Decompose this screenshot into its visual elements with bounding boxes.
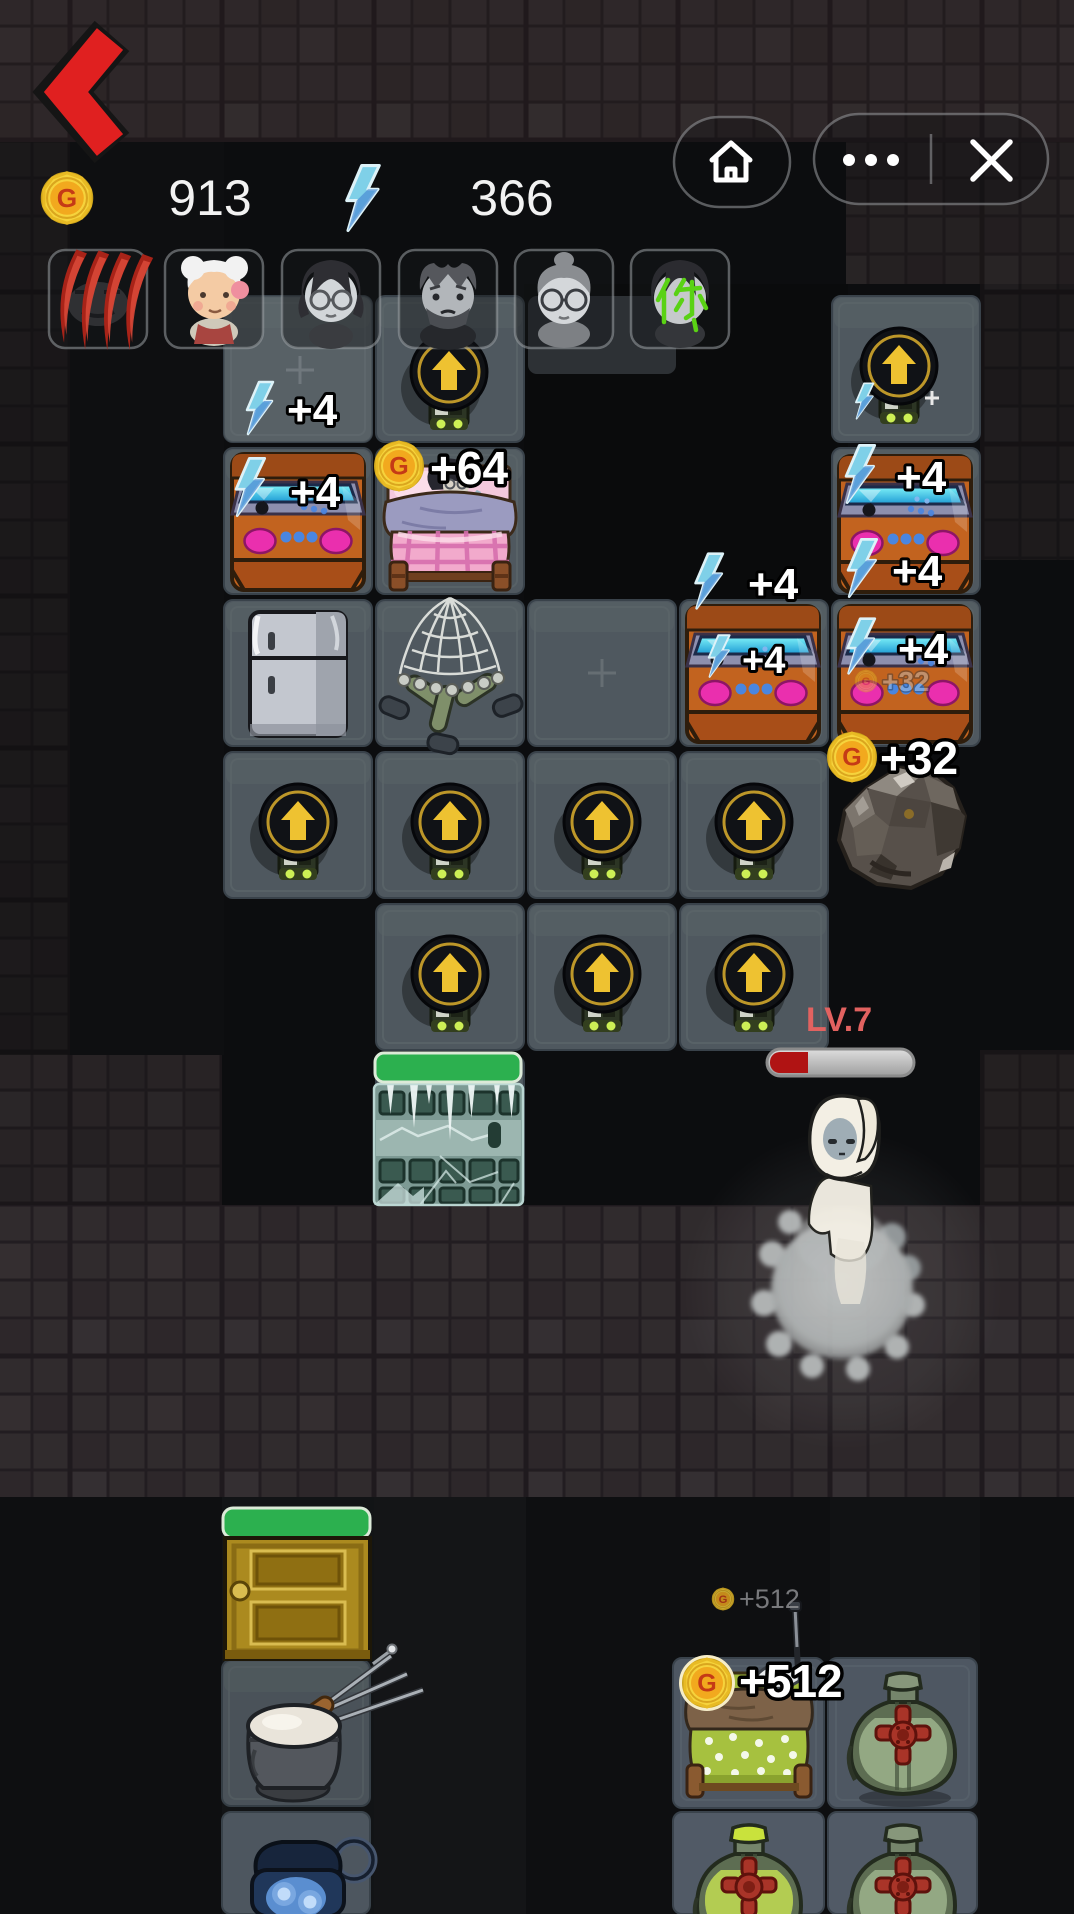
svg-text:+4: +4 [896, 453, 947, 502]
svg-text:+4: +4 [892, 547, 943, 596]
svg-text:+4: +4 [287, 386, 338, 435]
svg-text:+4: +4 [742, 640, 785, 682]
svg-text:+4: +4 [290, 468, 341, 517]
svg-text:913: 913 [168, 170, 251, 226]
svg-text:+32: +32 [882, 666, 930, 697]
svg-text:+512: +512 [739, 1655, 843, 1707]
svg-text:366: 366 [470, 170, 553, 226]
svg-text:+512: +512 [739, 1584, 800, 1614]
svg-text:+4: +4 [748, 560, 799, 609]
svg-text:+32: +32 [880, 732, 958, 784]
svg-text:+64: +64 [430, 442, 508, 494]
svg-text:LV.7: LV.7 [806, 1001, 872, 1039]
